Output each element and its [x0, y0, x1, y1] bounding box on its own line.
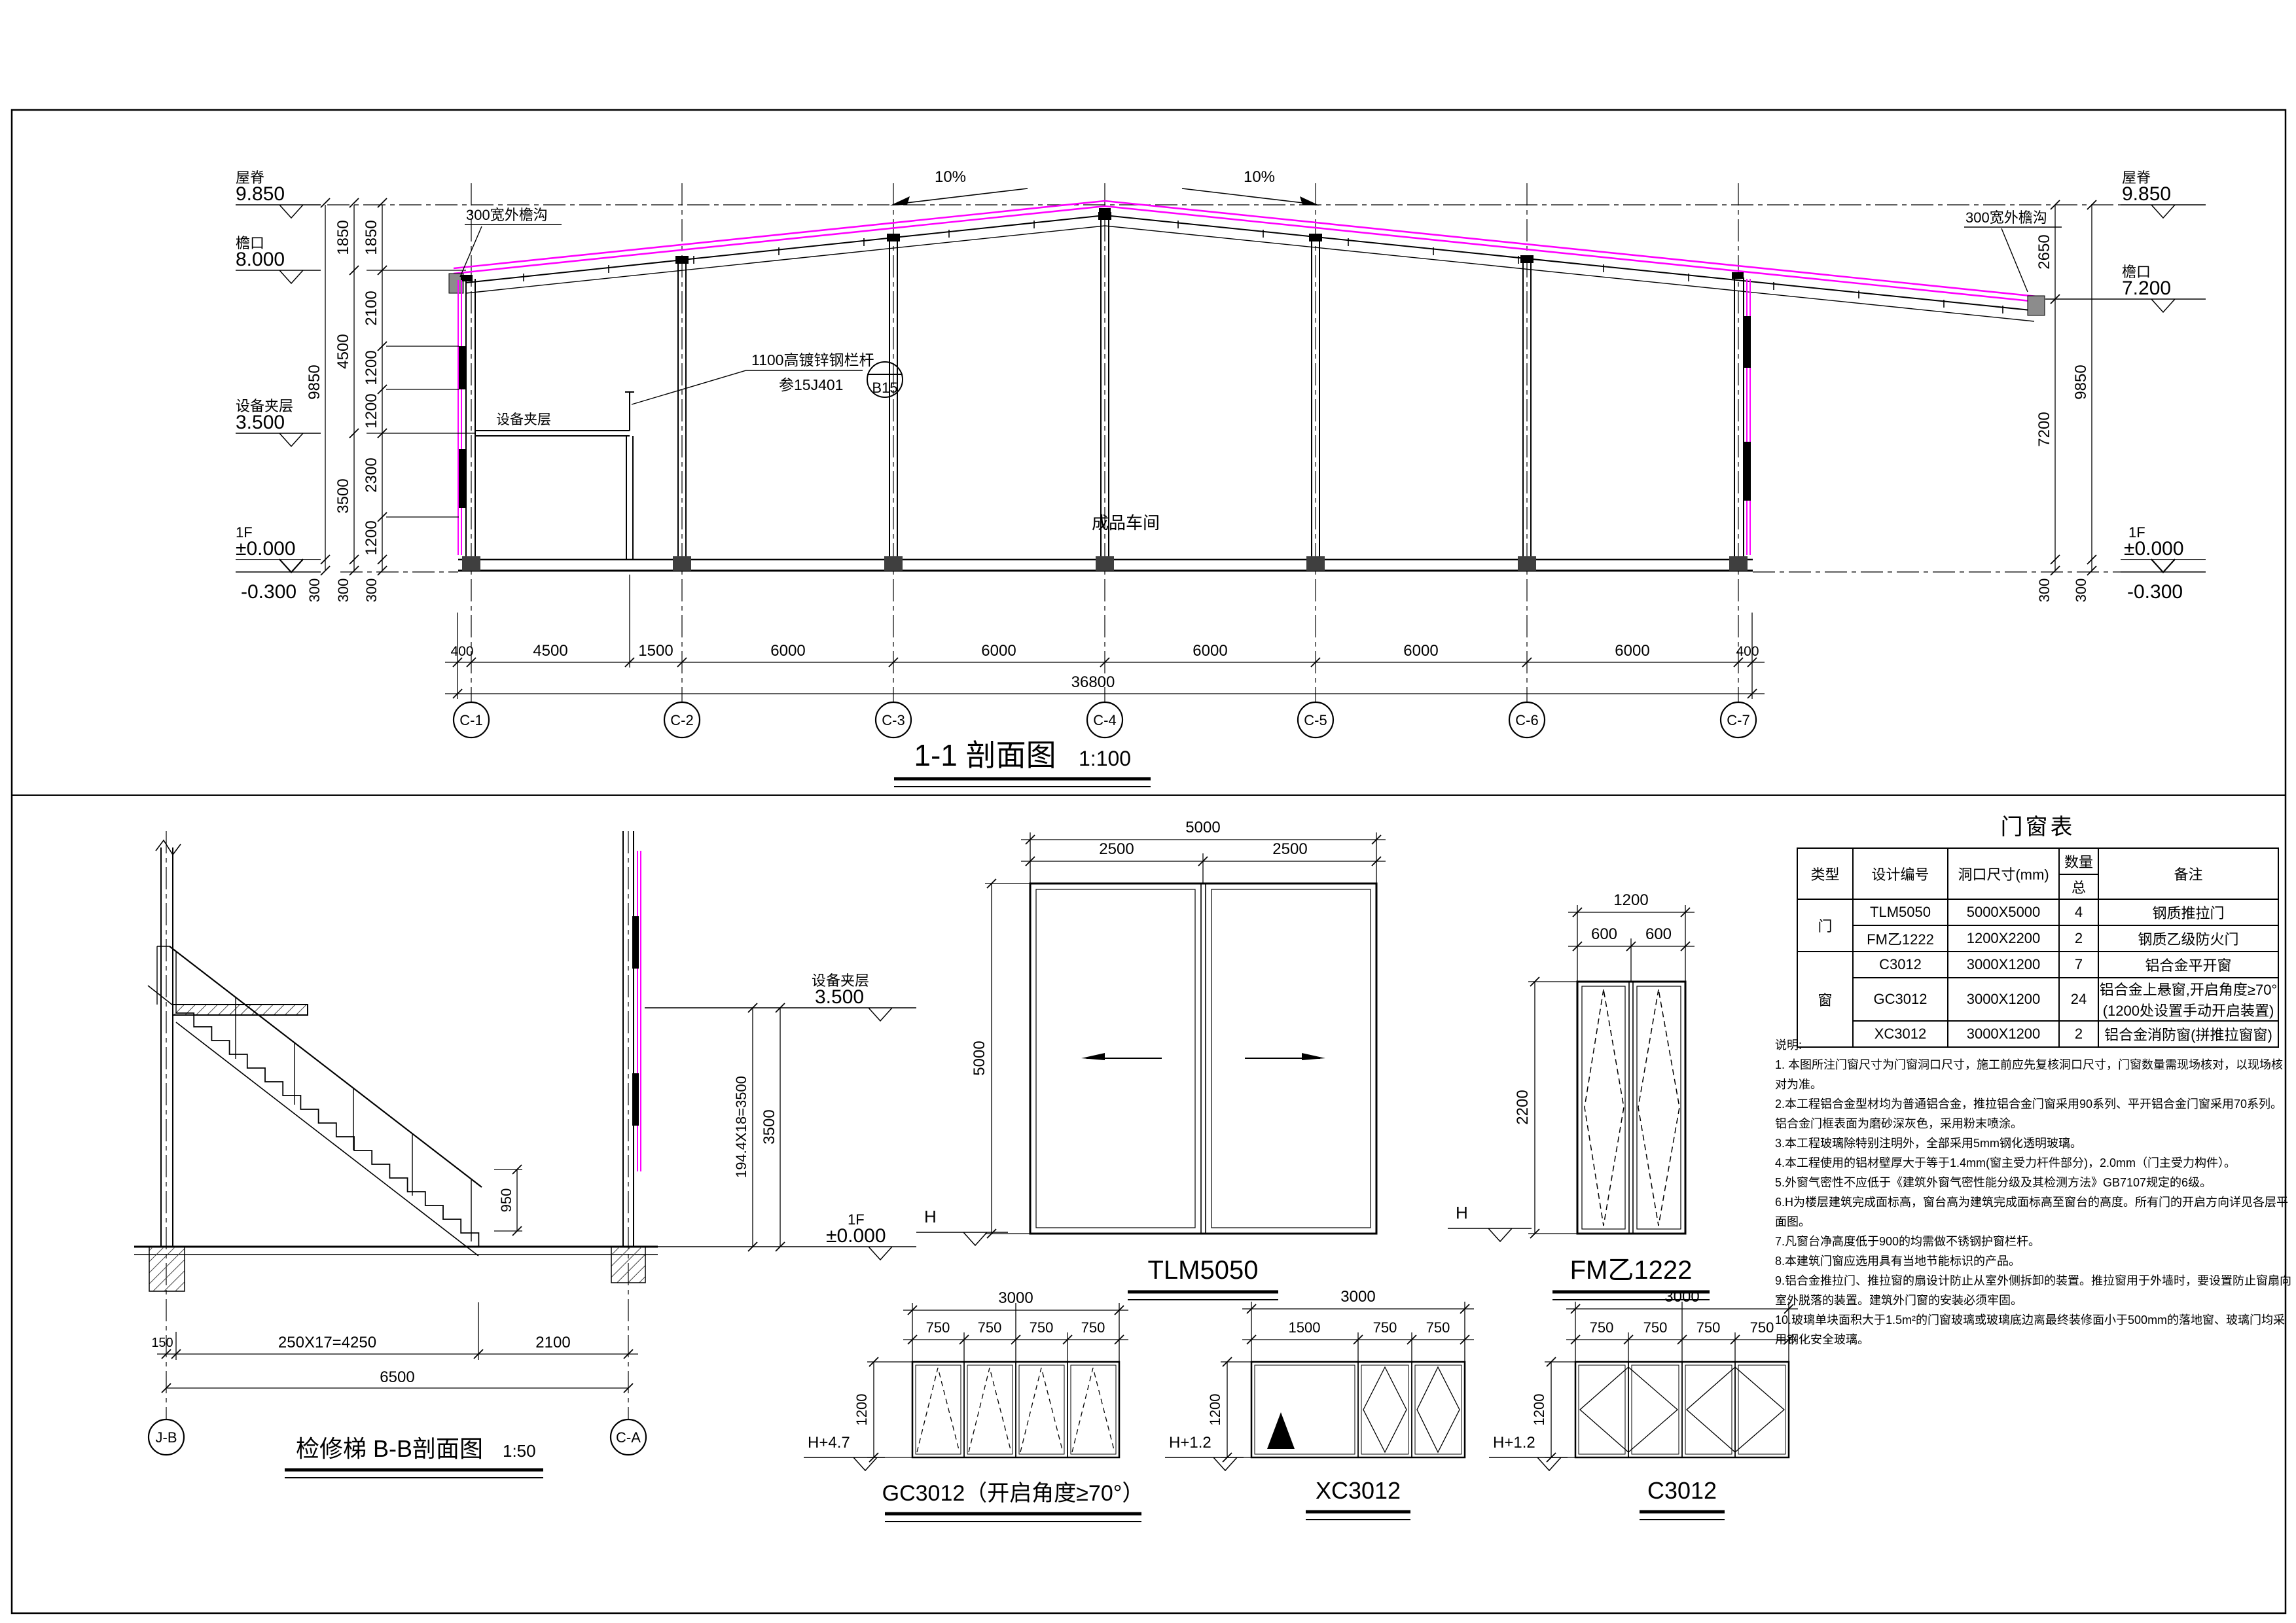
- stair-dims-horizontal: 150 250X17=4250 2100 6500: [151, 1302, 638, 1393]
- window-section: [459, 346, 467, 389]
- dims-right: 2650 7200 300 9850 300: [2036, 200, 2096, 602]
- code-cell: FM乙1222: [1853, 925, 1948, 952]
- col-header-qty: 数量: [2059, 848, 2098, 874]
- dim-label: 3500: [334, 478, 352, 513]
- detail-c3012: 3000 750 750 750 750 1200 H+1.2 C3012: [1489, 1288, 1798, 1520]
- col-header-size: 洞口尺寸(mm): [1948, 848, 2059, 899]
- svg-text:1-1 剖面图: 1-1 剖面图: [914, 738, 1056, 772]
- dim-label: 400: [450, 644, 473, 659]
- stair-flight: [148, 946, 482, 1256]
- wall-right: [1732, 272, 1751, 560]
- dim-total-label: 36800: [1071, 673, 1115, 691]
- section-1-1: 设备夹层 成品车间 1100高镀锌钢栏杆 参15J401 B15 300宽外檐沟…: [236, 168, 2206, 787]
- dim-label: 150: [151, 1336, 173, 1350]
- dim-label: 750: [1750, 1319, 1774, 1336]
- svg-text:GC3012（开启角度≥70°）: GC3012（开启角度≥70°）: [882, 1481, 1145, 1506]
- dim-label: 2500: [1272, 840, 1307, 858]
- gutter-right: [2028, 296, 2045, 315]
- gc-dims: 3000 750 750 750 750 1200: [853, 1289, 1128, 1462]
- dim-label: 750: [1643, 1319, 1668, 1336]
- col-header-remark: 备注: [2098, 848, 2278, 899]
- dim-label: 1850: [334, 220, 352, 255]
- dim-label: 1200: [853, 1394, 870, 1426]
- level-value: -0.300: [241, 581, 296, 603]
- drawing-sheet: 设备夹层 成品车间 1100高镀锌钢栏杆 参15J401 B15 300宽外檐沟…: [0, 0, 2296, 1623]
- dim-label: 6000: [1615, 642, 1649, 660]
- grid-bubble-label: C-4: [1093, 712, 1116, 728]
- level-value: 7.200: [2122, 277, 2171, 299]
- dim-label: 1200: [1613, 891, 1648, 909]
- grid-bubble-label: C-3: [882, 712, 905, 728]
- gc-title: GC3012（开启角度≥70°）: [882, 1481, 1145, 1522]
- level-value: 3.500: [236, 412, 285, 433]
- detail-xc3012: 3000 1500 750 750 1200 H+1.2 XC3012: [1165, 1288, 1474, 1520]
- grid-bubble-label: C-6: [1515, 712, 1538, 728]
- dim-label: 6000: [1403, 642, 1438, 660]
- svg-text:FM乙1222: FM乙1222: [1570, 1256, 1693, 1285]
- note-item: 3.本工程玻璃除特别注明外，全部采用5mm钢化透明玻璃。: [1775, 1133, 2293, 1153]
- c-level-marker: H+1.2: [1489, 1434, 1568, 1471]
- detail-bubble-ref: B15: [872, 380, 897, 396]
- stair-ground: [134, 1247, 658, 1291]
- datum-lines: [327, 205, 2121, 572]
- qty-cell: 7: [2059, 952, 2098, 978]
- dim-label: 1500: [638, 642, 673, 660]
- dim-label: 750: [1590, 1319, 1614, 1336]
- level-name: H: [1456, 1203, 1468, 1222]
- fire-access-marker: [1267, 1412, 1295, 1449]
- table-row: FM乙1222 1200X2200 2 钢质乙级防火门: [1797, 925, 2278, 952]
- tlm-title: TLM5050: [1128, 1256, 1278, 1300]
- dim-label: 1500: [1289, 1319, 1321, 1336]
- room-label: 成品车间: [1092, 513, 1160, 533]
- col-header-code: 设计编号: [1853, 848, 1948, 899]
- dim-label: 600: [1645, 925, 1672, 943]
- size-cell: 1200X2200: [1948, 925, 2059, 952]
- dim-label: 3000: [1340, 1288, 1375, 1306]
- dim-label: 1200: [363, 393, 380, 428]
- level-value: ±0.000: [2124, 538, 2184, 560]
- tlm-level-marker: H: [916, 1207, 1008, 1245]
- stair-railing: [170, 946, 482, 1187]
- dim-label: 750: [978, 1319, 1002, 1336]
- dim-label: 3000: [1664, 1288, 1699, 1306]
- railing-note-line1: 1100高镀锌钢栏杆: [751, 351, 874, 368]
- general-notes: 说明: 1. 本图所注门窗尺寸为门窗洞口尺寸，施工前应先复核洞口尺寸，门窗数量需…: [1775, 1035, 2293, 1349]
- dim-label: 400: [1736, 644, 1759, 659]
- col-header-qty-sub: 总: [2059, 874, 2098, 899]
- dim-label: 2100: [535, 1334, 570, 1351]
- svg-text:10%: 10%: [935, 168, 966, 186]
- dim-label: 2300: [363, 457, 380, 492]
- note-item: 8.本建筑门窗应选用具有当地节能标识的产品。: [1775, 1251, 2293, 1271]
- dims-left: 9850 300 1850 4500 3500 300 1850 2100 12…: [306, 198, 387, 602]
- stair-left-wall: [156, 840, 181, 1247]
- note-item: 1. 本图所注门窗尺寸为门窗洞口尺寸，施工前应先复核洞口尺寸，门窗数量需现场核对…: [1775, 1055, 2293, 1094]
- dim-label: 2650: [2036, 234, 2053, 269]
- type-cell-door: 门: [1797, 899, 1853, 952]
- svg-text:XC3012: XC3012: [1316, 1477, 1401, 1504]
- note-item: 7.凡窗台净高度低于900的均需做不锈钢护窗栏杆。: [1775, 1232, 2293, 1251]
- svg-text:TLM5050: TLM5050: [1148, 1256, 1259, 1285]
- size-cell: 5000X5000: [1948, 899, 2059, 925]
- dim-label: 9850: [306, 365, 323, 399]
- dim-label: 750: [1696, 1319, 1721, 1336]
- wall-left: [458, 275, 475, 560]
- code-cell: TLM5050: [1853, 899, 1948, 925]
- gc-level-marker: H+4.7: [804, 1434, 885, 1471]
- level-name: H+1.2: [1493, 1434, 1535, 1452]
- table-row: 门 TLM5050 5000X5000 4 钢质推拉门: [1797, 899, 2278, 925]
- xc-level-marker: H+1.2: [1165, 1434, 1244, 1471]
- dim-label: 6000: [981, 642, 1016, 660]
- level-value: ±0.000: [826, 1225, 886, 1247]
- dim-label: 2500: [1099, 840, 1134, 858]
- size-cell: 3000X1200: [1948, 952, 2059, 978]
- remark-cell: 钢质推拉门: [2098, 899, 2278, 925]
- code-cell: GC3012: [1853, 978, 1948, 1021]
- stair-dims-vertical: 194.4X18=3500 3500: [733, 1003, 785, 1251]
- stair-right-wall: [623, 831, 641, 1247]
- dim-label: 950: [498, 1188, 514, 1213]
- grid-bubble-label: C-1: [459, 712, 482, 728]
- type-cell-window: 窗: [1797, 952, 1853, 1047]
- note-item: 5.外窗气密性不应低于《建筑外窗气密性能分级及其检测方法》GB7107规定的6级…: [1775, 1173, 2293, 1192]
- fm-dims: 1200 600 600 2200: [1514, 891, 1695, 1238]
- col-header-type: 类型: [1797, 848, 1853, 899]
- grid-bubble-label: C-2: [670, 712, 693, 728]
- table-row: GC3012 3000X1200 24 铝合金上悬窗,开启角度≥70°(1200…: [1797, 978, 2278, 1021]
- dim-label: 1200: [363, 350, 380, 385]
- grid-bubble-label: C-7: [1727, 712, 1749, 728]
- dim-label: 4500: [533, 642, 567, 660]
- level-value: 3.500: [815, 986, 864, 1008]
- tlm-dims: 5000 2500 2500 5000: [971, 819, 1386, 1238]
- dim-label: 750: [1373, 1319, 1397, 1336]
- dim-label: 300: [335, 579, 351, 603]
- dim-label: 300: [306, 579, 323, 603]
- mezzanine-railing: [625, 392, 634, 431]
- note-item: 10.玻璃单块面积大于1.5m²的门窗玻璃或玻璃底边离最终装修面小于500mm的…: [1775, 1310, 2293, 1349]
- dim-label: 1200: [1207, 1394, 1223, 1426]
- detail-gc3012: 3000 750 750 750 750 1200 H+4.7 GC3012（开…: [804, 1289, 1144, 1522]
- purlin-ticks: [524, 221, 2003, 313]
- dim-label: 194.4X18=3500: [733, 1076, 749, 1178]
- schedule-title: 门窗表: [1797, 809, 2279, 841]
- level-name: H: [924, 1207, 937, 1226]
- c-title: C3012: [1640, 1477, 1725, 1520]
- dim-label: 750: [1030, 1319, 1054, 1336]
- qty-cell: 4: [2059, 899, 2098, 925]
- dim-label: 5000: [1185, 819, 1220, 836]
- qty-cell: 24: [2059, 978, 2098, 1021]
- dim-label: 4500: [334, 334, 352, 368]
- detail-fm1222: 1200 600 600 2200 H FM乙1222: [1448, 891, 1710, 1300]
- level-name: H+1.2: [1169, 1434, 1211, 1452]
- dim-label: 300: [2073, 579, 2089, 603]
- grid-bubble-label: J-B: [156, 1429, 177, 1446]
- schedule-table: 类型 设计编号 洞口尺寸(mm) 数量 备注 总 门 TLM5050 5000X…: [1797, 847, 2279, 1048]
- door-swing-symbols: [1585, 990, 1679, 1226]
- dim-label: 1200: [363, 520, 380, 555]
- dim-label: 300: [2036, 579, 2053, 603]
- mezzanine-label: 设备夹层: [496, 412, 551, 427]
- note-item: 4.本工程使用的铝材壁厚大于等于1.4mm(窗主受力杆件部分)，2.0mm（门主…: [1775, 1153, 2293, 1173]
- dim-label: 9850: [2072, 365, 2090, 399]
- svg-text:10%: 10%: [1244, 168, 1275, 186]
- window-section: [1743, 316, 1751, 368]
- level-name: H+4.7: [808, 1434, 850, 1452]
- dim-label: 750: [1426, 1319, 1450, 1336]
- note-item: 9.铝合金推拉门、推拉窗的扇设计防止从室外侧拆卸的装置。推拉窗用于外墙时，要设置…: [1775, 1271, 2293, 1310]
- slide-arrows: [1081, 1053, 1325, 1060]
- railing-note-line2: 参15J401: [779, 376, 843, 393]
- dim-label: 250X17=4250: [278, 1334, 376, 1351]
- size-cell: 3000X1200: [1948, 978, 2059, 1021]
- dim-label: 2100: [363, 291, 380, 325]
- dim-label: 1200: [1531, 1394, 1547, 1426]
- slope-annotation-right: 10%: [1182, 168, 1319, 205]
- grid-bubble-label: C-A: [616, 1429, 641, 1446]
- level-value: 9.850: [236, 183, 285, 205]
- dim-rail-height: 950: [494, 1165, 522, 1236]
- svg-text:300宽外檐沟: 300宽外檐沟: [466, 207, 548, 223]
- stair-title: 检修梯 B-B剖面图 1:50: [285, 1435, 543, 1478]
- dim-label: 6500: [380, 1368, 414, 1386]
- notes-title: 说明:: [1775, 1035, 2293, 1055]
- dim-label: 300: [363, 579, 380, 603]
- dim-label: 5000: [971, 1041, 988, 1075]
- grid-bubbles: C-1 C-2 C-3 C-4 C-5 C-6 C-7: [454, 702, 1756, 738]
- railing-posts: [157, 946, 471, 1241]
- level-markers-right: 屋脊 9.850 檐口 7.200 1F ±0.000 -0.300: [2045, 169, 2206, 603]
- dim-label: 6000: [1193, 642, 1227, 660]
- dim-label: 750: [1081, 1319, 1105, 1336]
- level-value: 8.000: [236, 249, 285, 270]
- stair-section: 950 设备夹层 3.500 1F ±0.000 194.4X18=3500 3…: [134, 831, 916, 1478]
- dim-label: 2200: [1514, 1090, 1532, 1124]
- qty-cell: 2: [2059, 925, 2098, 952]
- railing-annotation: 1100高镀锌钢栏杆 参15J401 B15: [632, 351, 903, 404]
- detail-tlm5050: 5000 2500 2500 5000 H TLM5050: [916, 819, 1386, 1300]
- dim-label: 750: [926, 1319, 950, 1336]
- remark-cell: 铝合金上悬窗,开启角度≥70°(1200处设置手动开启装置): [2098, 978, 2278, 1021]
- svg-text:检修梯 B-B剖面图: 检修梯 B-B剖面图: [296, 1435, 483, 1462]
- dim-label: 6000: [770, 642, 805, 660]
- level-value: 9.850: [2122, 183, 2171, 205]
- roof-structure: [466, 208, 2037, 321]
- grid-bubble-label: C-5: [1304, 712, 1327, 728]
- level-value: -0.300: [2127, 581, 2183, 603]
- remark-cell: 钢质乙级防火门: [2098, 925, 2278, 952]
- dim-label: 1850: [363, 220, 380, 255]
- dim-label: 600: [1591, 925, 1617, 943]
- svg-text:C3012: C3012: [1647, 1477, 1717, 1504]
- c-dims: 3000 750 750 750 750 1200: [1531, 1288, 1798, 1462]
- code-cell: C3012: [1853, 952, 1948, 978]
- window-section: [632, 1073, 639, 1126]
- dim-label: 3500: [761, 1109, 778, 1144]
- note-item: 2.本工程铝合金型材均为普通铝合金，推拉铝合金门窗采用90系列、平开铝合金门窗采…: [1775, 1094, 2293, 1133]
- dim-label: 3000: [998, 1289, 1033, 1307]
- window-section: [632, 916, 639, 969]
- section-scale: 1:100: [1079, 747, 1131, 770]
- window-section: [459, 449, 467, 508]
- grid-lines: [166, 831, 628, 1419]
- slope-annotation-left: 10%: [890, 168, 1028, 205]
- level-value: ±0.000: [236, 538, 296, 560]
- xc-title: XC3012: [1306, 1477, 1410, 1520]
- door-window-schedule: 门窗表 类型 设计编号 洞口尺寸(mm) 数量 备注 总 门 TLM5050 5…: [1797, 809, 2279, 1048]
- footings: [462, 556, 1748, 571]
- window-section: [1743, 442, 1751, 501]
- note-item: 6.H为楼层建筑完成面标高，窗台高为建筑完成面标高至窗台的高度。所有门的开启方向…: [1775, 1192, 2293, 1232]
- stair-scale: 1:50: [503, 1441, 536, 1461]
- svg-text:300宽外檐沟: 300宽外檐沟: [1965, 209, 2047, 226]
- section-title: 1-1 剖面图 1:100: [894, 738, 1151, 787]
- fm-level-marker: H: [1448, 1203, 1532, 1241]
- dim-label: 7200: [2036, 412, 2053, 446]
- remark-cell: 铝合金平开窗: [2098, 952, 2278, 978]
- table-row: 窗 C3012 3000X1200 7 铝合金平开窗: [1797, 952, 2278, 978]
